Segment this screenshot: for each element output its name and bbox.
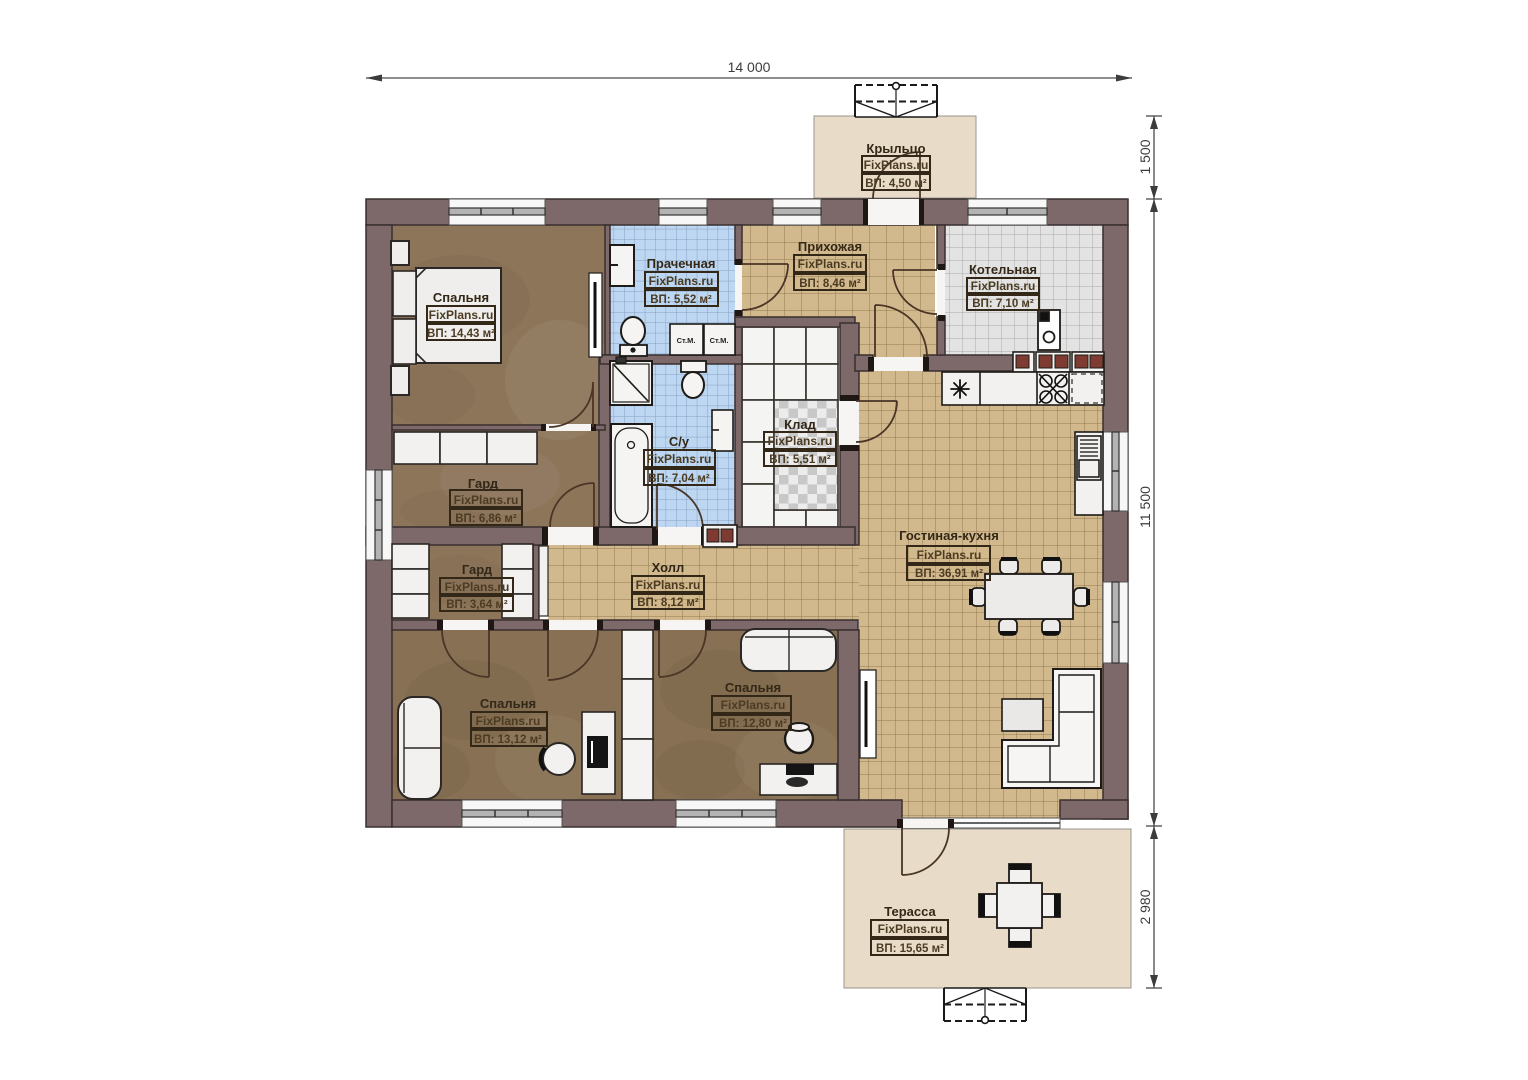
svg-text:Спальня: Спальня xyxy=(433,290,489,305)
svg-text:Ст.М.: Ст.М. xyxy=(710,336,729,345)
svg-text:ВП: 36,91 м²: ВП: 36,91 м² xyxy=(915,568,983,580)
svg-text:Ст.М.: Ст.М. xyxy=(677,336,696,345)
svg-text:FixPlans.ru: FixPlans.ru xyxy=(878,922,943,936)
svg-text:11 500: 11 500 xyxy=(1137,486,1153,528)
svg-text:С/у: С/у xyxy=(669,434,690,449)
svg-text:Гард: Гард xyxy=(468,476,499,491)
svg-text:ВП: 13,12 м²: ВП: 13,12 м² xyxy=(474,734,542,746)
svg-text:FixPlans.ru: FixPlans.ru xyxy=(971,279,1036,293)
svg-text:ВП: 7,04 м²: ВП: 7,04 м² xyxy=(648,473,710,485)
svg-text:FixPlans.ru: FixPlans.ru xyxy=(445,580,510,594)
svg-text:Крыльцо: Крыльцо xyxy=(866,141,925,156)
svg-text:FixPlans.ru: FixPlans.ru xyxy=(768,434,833,448)
svg-text:Спальня: Спальня xyxy=(725,680,781,695)
svg-text:ВП: 3,64 м²: ВП: 3,64 м² xyxy=(446,599,508,611)
svg-text:Клад: Клад xyxy=(784,417,816,432)
svg-text:FixPlans.ru: FixPlans.ru xyxy=(649,274,714,288)
svg-text:ВП: 6,86 м²: ВП: 6,86 м² xyxy=(455,513,517,525)
svg-text:FixPlans.ru: FixPlans.ru xyxy=(721,698,786,712)
svg-text:FixPlans.ru: FixPlans.ru xyxy=(917,548,982,562)
svg-text:FixPlans.ru: FixPlans.ru xyxy=(636,578,701,592)
svg-text:FixPlans.ru: FixPlans.ru xyxy=(454,493,519,507)
svg-text:Гостиная-кухня: Гостиная-кухня xyxy=(899,528,999,543)
svg-text:Терасса: Терасса xyxy=(884,904,936,919)
svg-text:ВП: 12,80 м²: ВП: 12,80 м² xyxy=(719,718,787,730)
svg-text:ВП: 8,46 м²: ВП: 8,46 м² xyxy=(799,278,861,290)
svg-text:ВП: 8,12 м²: ВП: 8,12 м² xyxy=(637,597,699,609)
svg-text:FixPlans.ru: FixPlans.ru xyxy=(429,308,494,322)
svg-text:ВП: 15,65 м²: ВП: 15,65 м² xyxy=(876,943,944,955)
svg-text:2 980: 2 980 xyxy=(1137,889,1153,924)
svg-text:Прачечная: Прачечная xyxy=(647,256,716,271)
svg-text:ВП: 14,43 м²: ВП: 14,43 м² xyxy=(427,328,495,340)
svg-text:ВП: 5,52 м²: ВП: 5,52 м² xyxy=(650,294,712,306)
svg-text:14 000: 14 000 xyxy=(728,59,771,75)
svg-text:FixPlans.ru: FixPlans.ru xyxy=(864,158,929,172)
svg-text:Холл: Холл xyxy=(652,560,685,575)
svg-text:ВП: 4,50 м²: ВП: 4,50 м² xyxy=(865,178,927,190)
svg-text:Спальня: Спальня xyxy=(480,696,536,711)
svg-text:FixPlans.ru: FixPlans.ru xyxy=(647,452,712,466)
svg-text:FixPlans.ru: FixPlans.ru xyxy=(798,257,863,271)
svg-text:Прихожая: Прихожая xyxy=(798,239,862,254)
svg-text:ВП: 7,10 м²: ВП: 7,10 м² xyxy=(972,298,1034,310)
svg-text:FixPlans.ru: FixPlans.ru xyxy=(476,714,541,728)
svg-text:Гард: Гард xyxy=(462,562,493,577)
svg-text:ВП: 5,51 м²: ВП: 5,51 м² xyxy=(769,454,831,466)
svg-text:Котельная: Котельная xyxy=(969,262,1037,277)
svg-text:1 500: 1 500 xyxy=(1137,139,1153,174)
